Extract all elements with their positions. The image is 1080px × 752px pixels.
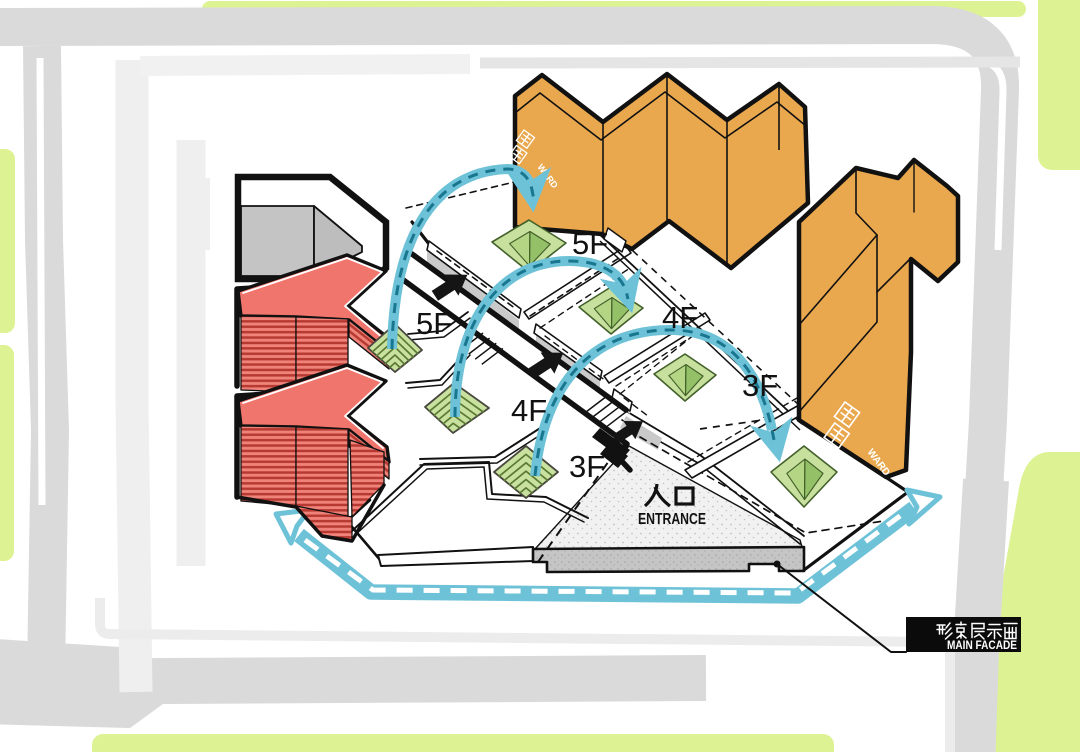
svg-text:4F: 4F xyxy=(662,300,698,335)
svg-text:5F: 5F xyxy=(572,226,608,261)
svg-text:3F: 3F xyxy=(742,368,778,403)
svg-text:ENTRANCE: ENTRANCE xyxy=(638,511,706,528)
svg-text:4F: 4F xyxy=(511,393,547,428)
svg-text:MAIN FACADE: MAIN FACADE xyxy=(947,638,1017,652)
svg-text:3F: 3F xyxy=(569,449,605,484)
svg-text:5F: 5F xyxy=(416,306,452,341)
